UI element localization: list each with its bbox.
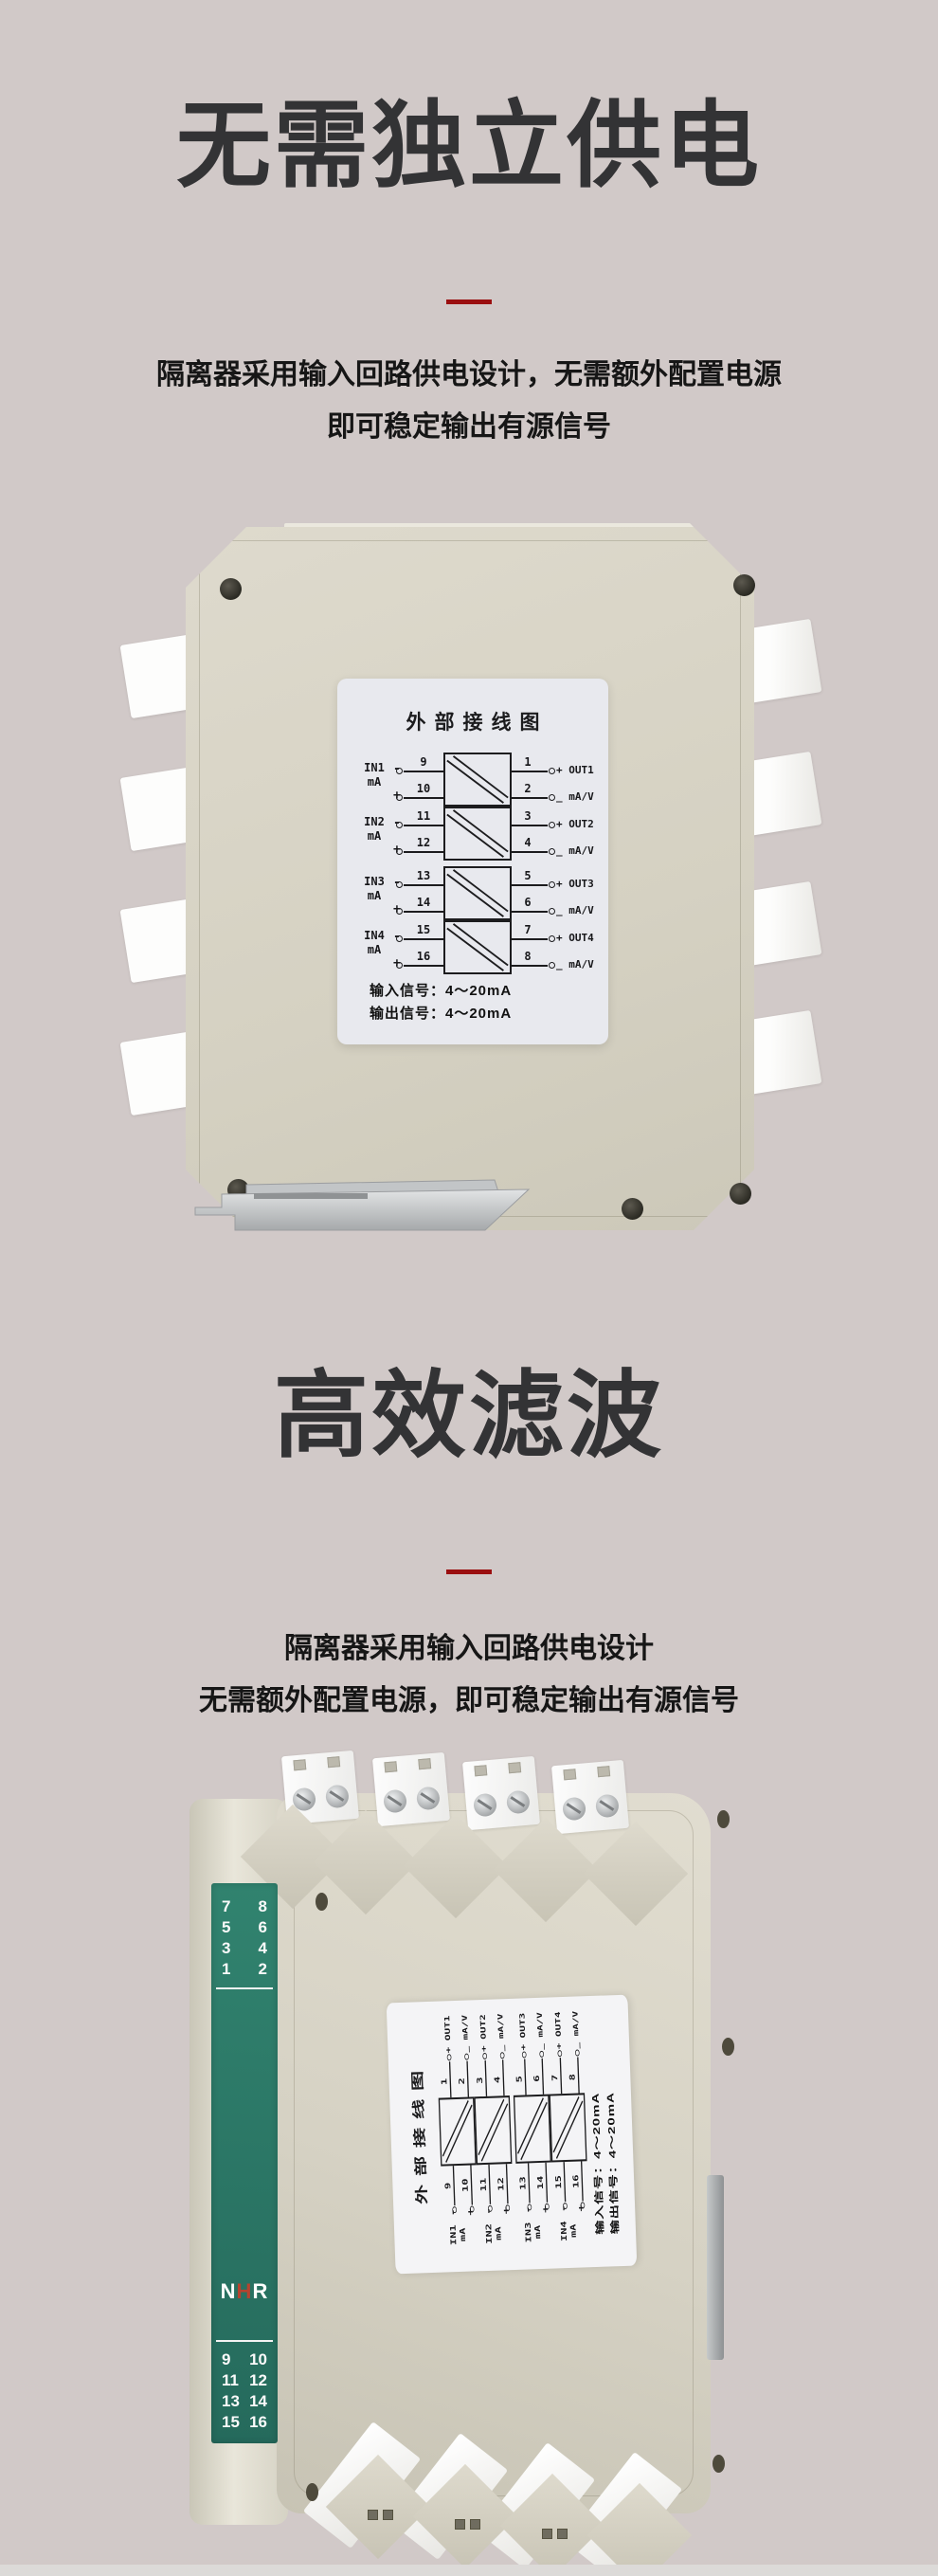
output-channel-label: + OUT2 xyxy=(478,2014,488,2052)
wire-line xyxy=(466,2061,469,2097)
terminal-number: 8 xyxy=(514,950,542,963)
wire-line xyxy=(453,2166,456,2205)
vent-hole xyxy=(383,2510,393,2520)
terminal-dot-icon xyxy=(396,908,403,915)
terminal-number: 15 xyxy=(553,2168,563,2196)
wire-line xyxy=(564,2162,567,2202)
terminal-dot-icon xyxy=(563,2203,568,2209)
terminal-number-row: 34 xyxy=(211,1938,278,1959)
terminal-dot-icon xyxy=(575,2049,580,2056)
isolator-block-icon xyxy=(549,2093,586,2162)
input-channel-label: IN3mA xyxy=(523,2210,543,2255)
section2-description: 隔离器采用输入回路供电设计 无需额外配置电源，即可稳定输出有源信号 xyxy=(0,1623,938,1727)
terminal-number: 9 xyxy=(409,755,438,769)
signal-spec-text: 输入信号：4～20mA 输出信号：4～20mA xyxy=(370,980,512,1025)
terminal-number-row: 1112 xyxy=(211,2370,278,2391)
terminal-number: 12 xyxy=(496,2169,505,2198)
terminal-number: 16 xyxy=(409,950,438,963)
terminal-dot-icon xyxy=(396,794,403,801)
terminal-dot-icon xyxy=(549,822,555,828)
wire-line xyxy=(542,2059,545,2095)
terminal-screw-icon xyxy=(325,1784,350,1808)
terminal-number: 11 xyxy=(478,2170,488,2199)
output-unit-label: _ mA/V xyxy=(556,904,594,916)
terminal-dot-icon xyxy=(500,2052,505,2059)
wire-line xyxy=(560,2058,563,2094)
wire-line xyxy=(404,965,443,967)
output-unit-label: _ mA/V xyxy=(556,844,594,857)
terminal-number: 11 xyxy=(409,809,438,823)
wire-slot xyxy=(327,1756,340,1768)
input-channel-label: IN4mA xyxy=(352,929,396,957)
wiring-label-title: 外部接线图 xyxy=(337,707,608,735)
output-unit-label: _ mA/V xyxy=(535,2012,545,2050)
isolator-front-photo: 外部接线图 IN1mA-+91012+ OUT1_ mA/VIN2mA-+111… xyxy=(133,523,810,1253)
terminal-dot-icon xyxy=(396,768,403,774)
terminal-dot-icon xyxy=(580,2202,585,2208)
wiring-diagram: IN1mA-+91012+ OUT1_ mA/VIN2mA-+111234+ O… xyxy=(337,753,608,974)
terminal-number: 9 xyxy=(442,2171,452,2200)
isolator-block-icon xyxy=(514,2095,551,2164)
terminal-dot-icon xyxy=(396,935,403,942)
wiring-diagram-label: 外部接线图 IN1mA-+91012+ OUT1_ mA/VIN2mA-+111… xyxy=(337,679,608,1044)
top-terminal-block-3 xyxy=(462,1756,540,1830)
vent-hole xyxy=(368,2510,378,2520)
lower-terminal-numbers: 910 1112 1314 1516 xyxy=(211,2349,278,2433)
nhr-logo: NHR xyxy=(211,2279,278,2304)
output-unit-label: _ mA/V xyxy=(460,2015,470,2053)
rotated-label-wrap: 外部接线图 IN1mA-+91012+ OUT1_ mA/VIN2mA-+111… xyxy=(387,1995,638,2275)
section2-red-divider xyxy=(446,1569,492,1574)
wire-slot xyxy=(563,1769,576,1780)
terminal-dot-icon xyxy=(549,881,555,888)
terminal-dot-icon xyxy=(505,2204,510,2211)
isolator-block-icon xyxy=(439,2096,477,2166)
mount-hole xyxy=(306,2483,318,2501)
wiring-label-title: 外部接线图 xyxy=(405,2002,433,2274)
wire-line xyxy=(404,825,443,826)
din-rail-clip xyxy=(180,1177,540,1234)
isolator-block-icon xyxy=(443,866,512,920)
isolator-angled-photo: 78 56 34 12 NHR 910 1112 1314 1516 外部接 xyxy=(123,1753,843,2576)
terminal-screw-icon xyxy=(506,1789,531,1814)
terminal-number: 6 xyxy=(532,2064,541,2093)
wire-line xyxy=(512,884,548,886)
terminal-dot-icon xyxy=(527,2204,532,2210)
output-channel-label: + OUT2 xyxy=(556,818,594,830)
terminal-screw-icon xyxy=(595,1793,620,1818)
terminal-number: 1 xyxy=(514,755,542,769)
output-unit-label: _ mA/V xyxy=(556,790,594,803)
wire-line xyxy=(449,2061,452,2097)
wire-line xyxy=(512,965,548,967)
terminal-number-row: 56 xyxy=(211,1917,278,1938)
wire-line xyxy=(524,2059,527,2095)
terminal-number-row: 12 xyxy=(211,1959,278,1980)
wire-line xyxy=(512,938,548,940)
terminal-number: 14 xyxy=(535,2168,545,2197)
wire-line xyxy=(577,2057,580,2093)
mount-hole xyxy=(722,2038,734,2056)
terminal-dot-icon xyxy=(549,935,555,942)
wire-line xyxy=(404,797,443,799)
terminal-number: 5 xyxy=(514,2065,524,2094)
terminal-number: 13 xyxy=(409,869,438,882)
section1-red-divider xyxy=(446,299,492,304)
terminal-number: 12 xyxy=(409,836,438,849)
output-channel-label: + OUT3 xyxy=(556,878,594,890)
wire-slot xyxy=(474,1765,487,1776)
wire-slot xyxy=(508,1762,521,1773)
wire-line xyxy=(404,771,443,772)
terminal-number: 2 xyxy=(514,782,542,795)
terminal-dot-icon xyxy=(549,794,555,801)
green-terminal-panel: 78 56 34 12 NHR 910 1112 1314 1516 xyxy=(211,1883,278,2443)
terminal-number: 10 xyxy=(460,2171,470,2200)
product-detail-page: 无需独立供电 隔离器采用输入回路供电设计，无需额外配置电源 即可稳定输出有源信号 xyxy=(0,0,938,2576)
mount-hole xyxy=(717,1810,730,1828)
output-channel-label: + OUT4 xyxy=(553,2011,563,2049)
output-signal-line: 输出信号：4～20mA xyxy=(370,1003,512,1025)
mount-hole xyxy=(713,2455,725,2473)
vent-hole xyxy=(542,2529,552,2539)
terminal-number: 7 xyxy=(514,923,542,936)
wire-line xyxy=(512,797,548,799)
terminal-number-row: 1314 xyxy=(211,2391,278,2412)
section1-title: 无需独立供电 xyxy=(0,93,938,199)
terminal-number-row: 78 xyxy=(211,1896,278,1917)
terminal-dot-icon xyxy=(549,908,555,915)
terminal-dot-icon xyxy=(447,2054,452,2060)
section2-desc-line1: 隔离器采用输入回路供电设计 xyxy=(0,1623,938,1675)
terminal-number: 16 xyxy=(571,2168,581,2196)
output-channel-label: + OUT1 xyxy=(556,764,594,776)
terminal-number: 6 xyxy=(514,896,542,909)
terminal-dot-icon xyxy=(549,768,555,774)
terminal-dot-icon xyxy=(522,2051,527,2058)
terminal-number: 4 xyxy=(493,2065,502,2094)
case-screw xyxy=(733,574,755,596)
wire-line xyxy=(404,851,443,853)
terminal-dot-icon xyxy=(396,848,403,855)
wire-slot xyxy=(418,1758,431,1769)
wire-line xyxy=(404,884,443,886)
case-screw xyxy=(220,578,242,600)
vent-hole xyxy=(455,2519,465,2530)
top-terminal-block-4 xyxy=(551,1760,629,1834)
terminal-number: 3 xyxy=(475,2066,484,2095)
top-terminal-block-2 xyxy=(372,1752,450,1826)
terminal-screw-icon xyxy=(562,1797,586,1822)
terminal-number: 2 xyxy=(457,2067,466,2095)
terminal-dot-icon xyxy=(557,2050,562,2057)
output-unit-label: _ mA/V xyxy=(496,2013,506,2051)
terminal-dot-icon xyxy=(452,2206,457,2213)
input-channel-label: IN2mA xyxy=(352,815,396,844)
isolator-block-icon xyxy=(443,807,512,861)
mount-hole xyxy=(316,1893,328,1911)
panel-divider-line xyxy=(216,1987,273,1989)
input-channel-label: IN1mA xyxy=(448,2213,468,2258)
page-bottom-band xyxy=(0,2565,938,2576)
terminal-dot-icon xyxy=(396,962,403,969)
terminal-screw-icon xyxy=(383,1789,407,1814)
terminal-number: 15 xyxy=(409,923,438,936)
wire-line xyxy=(581,2161,584,2201)
output-unit-label: _ mA/V xyxy=(556,958,594,971)
terminal-number: 3 xyxy=(514,809,542,823)
terminal-number: 5 xyxy=(514,869,542,882)
vent-hole xyxy=(470,2519,480,2530)
isolator-block-icon xyxy=(474,2095,512,2165)
terminal-number: 7 xyxy=(550,2063,559,2092)
terminal-number: 4 xyxy=(514,836,542,849)
wire-line xyxy=(512,851,548,853)
case-screw xyxy=(730,1183,751,1205)
wire-line xyxy=(506,2164,509,2204)
upper-terminal-numbers: 78 56 34 12 xyxy=(211,1896,278,1980)
wire-line xyxy=(488,2165,491,2204)
input-channel-label: IN3mA xyxy=(352,875,396,903)
terminal-dot-icon xyxy=(482,2053,487,2059)
wire-line xyxy=(528,2163,531,2203)
wire-line xyxy=(545,2163,548,2203)
case-screw xyxy=(622,1198,643,1220)
wire-line xyxy=(404,911,443,913)
wire-line xyxy=(512,771,548,772)
wiring-channel: IN4mA-+151678+ OUT4_ mA/V xyxy=(337,920,608,974)
terminal-dot-icon xyxy=(396,881,403,888)
isolator-block-icon xyxy=(443,920,512,974)
wire-slot xyxy=(597,1766,610,1777)
signal-spec-text: 输入信号：4～20mA 输出信号：4～20mA xyxy=(588,2092,623,2235)
section2-desc-line2: 无需额外配置电源，即可稳定输出有源信号 xyxy=(0,1675,938,1727)
terminal-number-row: 1516 xyxy=(211,2412,278,2433)
wire-line xyxy=(470,2166,473,2205)
section1-description: 隔离器采用输入回路供电设计，无需额外配置电源 即可稳定输出有源信号 xyxy=(0,349,938,453)
terminal-dot-icon xyxy=(539,2051,544,2058)
output-channel-label: + OUT4 xyxy=(556,932,594,944)
wiring-diagram-label: 外部接线图 IN1mA-+91012+ OUT1_ mA/VIN2mA-+111… xyxy=(387,1995,638,2275)
section1-desc-line2: 即可稳定输出有源信号 xyxy=(0,401,938,453)
isolator-block-icon xyxy=(443,753,512,807)
output-channel-label: + OUT1 xyxy=(443,2015,453,2053)
wire-line xyxy=(512,825,548,826)
wire-line xyxy=(512,911,548,913)
terminal-number: 1 xyxy=(440,2067,449,2095)
input-channel-label: IN1mA xyxy=(352,761,396,789)
wire-line xyxy=(502,2059,505,2095)
terminal-dot-icon xyxy=(545,2204,550,2210)
wiring-channel: IN2mA-+111234+ OUT2_ mA/V xyxy=(337,807,608,861)
input-channel-label: IN4mA xyxy=(559,2209,579,2254)
output-channel-label: + OUT3 xyxy=(518,2013,528,2051)
wire-slot xyxy=(384,1761,397,1772)
wire-line xyxy=(404,938,443,940)
terminal-screw-icon xyxy=(473,1793,497,1818)
output-unit-label: _ mA/V xyxy=(571,2011,581,2049)
wire-line xyxy=(485,2060,488,2096)
terminal-number: 14 xyxy=(409,896,438,909)
vent-hole xyxy=(557,2529,568,2539)
panel-divider-line xyxy=(216,2340,273,2342)
input-channel-label: IN2mA xyxy=(484,2211,504,2256)
wiring-diagram: IN1mA-+91012+ OUT1_ mA/VIN2mA-+111234+ O… xyxy=(435,1996,590,2272)
wiring-channel: IN3mA-+131456+ OUT3_ mA/V xyxy=(337,866,608,920)
terminal-number-row: 910 xyxy=(211,2349,278,2370)
din-rail-slider xyxy=(707,2175,724,2360)
terminal-dot-icon xyxy=(470,2205,475,2212)
wire-slot xyxy=(293,1759,306,1770)
input-signal-line: 输入信号：4～20mA xyxy=(370,980,512,1003)
terminal-dot-icon xyxy=(549,962,555,969)
terminal-dot-icon xyxy=(396,822,403,828)
terminal-screw-icon xyxy=(416,1786,441,1810)
terminal-dot-icon xyxy=(549,848,555,855)
terminal-number: 13 xyxy=(518,2168,528,2197)
section2-title: 高效滤波 xyxy=(0,1363,938,1469)
wiring-channel: IN1mA-+91012+ OUT1_ mA/V xyxy=(337,753,608,807)
terminal-number: 10 xyxy=(409,782,438,795)
section1-desc-line1: 隔离器采用输入回路供电设计，无需额外配置电源 xyxy=(0,349,938,401)
terminal-number: 8 xyxy=(568,2063,577,2092)
terminal-dot-icon xyxy=(488,2205,493,2212)
terminal-dot-icon xyxy=(464,2054,469,2060)
